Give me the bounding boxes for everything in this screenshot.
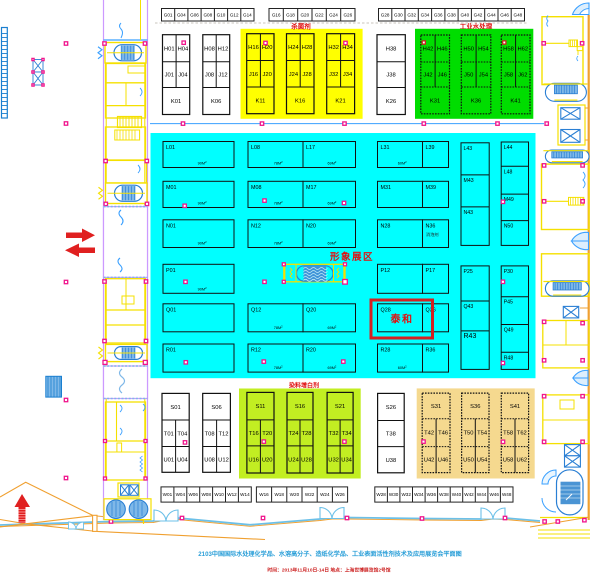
svg-text:H50: H50 <box>463 47 474 53</box>
svg-text:J04: J04 <box>178 73 188 79</box>
svg-text:T16: T16 <box>249 431 259 437</box>
svg-text:T34: T34 <box>342 431 353 437</box>
svg-text:W38: W38 <box>439 492 449 497</box>
svg-text:U12: U12 <box>218 458 229 464</box>
svg-text:染料增白剂: 染料增白剂 <box>288 382 319 390</box>
svg-text:U24: U24 <box>288 458 299 464</box>
svg-text:W22: W22 <box>305 492 315 497</box>
svg-text:时间：2013年11月10日-14日 地点：上海世博展: 时间：2013年11月10日-14日 地点：上海世博展览馆2号馆 <box>267 567 390 574</box>
svg-text:G16: G16 <box>272 12 281 17</box>
svg-text:J34: J34 <box>343 72 353 78</box>
svg-text:U34: U34 <box>341 458 352 464</box>
svg-text:U54: U54 <box>477 458 488 464</box>
svg-text:J16: J16 <box>249 72 258 78</box>
svg-text:U42: U42 <box>424 458 435 464</box>
svg-text:W18: W18 <box>274 492 284 497</box>
svg-text:N50: N50 <box>504 224 514 230</box>
svg-text:K26: K26 <box>386 99 396 105</box>
svg-text:N20: N20 <box>306 223 316 229</box>
svg-text:H12: H12 <box>218 46 229 52</box>
svg-text:R48: R48 <box>504 355 514 361</box>
svg-text:T58: T58 <box>503 431 513 437</box>
svg-text:泰和: 泰和 <box>390 313 414 326</box>
svg-text:G30: G30 <box>394 12 403 17</box>
svg-text:U16: U16 <box>248 458 259 464</box>
svg-text:杀菌剂: 杀菌剂 <box>291 22 311 31</box>
svg-text:M31: M31 <box>381 185 392 191</box>
svg-text:W46: W46 <box>489 492 499 497</box>
svg-text:T38: T38 <box>386 432 396 438</box>
svg-text:J62: J62 <box>518 73 527 79</box>
svg-text:W04: W04 <box>176 492 186 497</box>
svg-text:S36: S36 <box>470 404 480 410</box>
svg-text:T20: T20 <box>262 431 272 437</box>
svg-text:R43: R43 <box>464 333 477 340</box>
svg-text:G46: G46 <box>500 12 509 17</box>
svg-text:Q43: Q43 <box>464 304 474 310</box>
svg-text:K16: K16 <box>295 98 305 104</box>
svg-text:P30: P30 <box>504 269 513 275</box>
svg-text:H01: H01 <box>164 46 175 52</box>
svg-text:J42: J42 <box>423 73 432 79</box>
svg-text:U32: U32 <box>328 458 339 464</box>
svg-text:G44: G44 <box>487 12 496 17</box>
svg-text:U04: U04 <box>177 458 188 464</box>
svg-text:W14: W14 <box>240 492 250 497</box>
svg-text:Q49: Q49 <box>504 328 514 334</box>
svg-text:T24: T24 <box>289 431 300 437</box>
svg-text:U20: U20 <box>262 458 273 464</box>
svg-text:S01: S01 <box>170 405 180 411</box>
svg-text:M17: M17 <box>306 185 317 191</box>
svg-text:Q12: Q12 <box>251 307 261 313</box>
svg-text:J01: J01 <box>165 73 174 79</box>
svg-text:U28: U28 <box>301 458 312 464</box>
svg-text:J50: J50 <box>464 73 473 79</box>
svg-text:W10: W10 <box>214 492 224 497</box>
svg-text:G48: G48 <box>514 12 523 17</box>
svg-text:L17: L17 <box>306 145 315 151</box>
svg-text:W16: W16 <box>259 492 269 497</box>
svg-text:U01: U01 <box>163 458 174 464</box>
svg-text:S21: S21 <box>335 404 345 410</box>
svg-text:H58: H58 <box>503 47 514 53</box>
svg-text:R20: R20 <box>306 348 316 354</box>
svg-text:J12: J12 <box>218 73 227 79</box>
svg-text:H28: H28 <box>302 45 313 51</box>
svg-text:P01: P01 <box>166 268 176 274</box>
svg-text:G26: G26 <box>343 12 352 17</box>
svg-text:Q01: Q01 <box>166 307 176 313</box>
svg-text:L01: L01 <box>166 145 175 151</box>
svg-text:J08: J08 <box>205 73 214 79</box>
svg-text:L44: L44 <box>504 145 513 151</box>
svg-text:H08: H08 <box>204 46 215 52</box>
svg-text:L31: L31 <box>381 145 390 151</box>
svg-text:P12: P12 <box>381 268 391 274</box>
svg-text:H16: H16 <box>248 45 259 51</box>
svg-text:M39: M39 <box>426 185 437 191</box>
svg-text:L08: L08 <box>251 145 260 151</box>
svg-text:G32: G32 <box>407 12 416 17</box>
svg-text:N28: N28 <box>381 223 391 229</box>
svg-text:J20: J20 <box>263 72 272 78</box>
svg-text:W26: W26 <box>335 492 345 497</box>
svg-text:W32: W32 <box>401 492 411 497</box>
svg-text:T46: T46 <box>438 431 448 437</box>
svg-text:S41: S41 <box>510 404 520 410</box>
svg-text:2103中国国际水处理化学品、水溶高分子、造纸化学品、工业表: 2103中国国际水处理化学品、水溶高分子、造纸化学品、工业表面活性剂技术及应用展… <box>198 550 461 558</box>
svg-text:W40: W40 <box>452 492 462 497</box>
svg-text:W01: W01 <box>163 492 173 497</box>
svg-text:W06: W06 <box>188 492 198 497</box>
svg-text:H54: H54 <box>478 47 489 53</box>
svg-text:G28: G28 <box>381 12 390 17</box>
svg-text:J46: J46 <box>438 73 447 79</box>
svg-text:N01: N01 <box>166 223 176 229</box>
svg-text:U46: U46 <box>438 458 449 464</box>
svg-text:L43: L43 <box>464 146 473 152</box>
svg-text:G42: G42 <box>474 12 483 17</box>
svg-text:U62: U62 <box>516 458 527 464</box>
svg-text:G06: G06 <box>190 12 199 17</box>
svg-text:S31: S31 <box>431 404 441 410</box>
svg-text:K31: K31 <box>430 99 440 105</box>
svg-text:H24: H24 <box>288 45 299 51</box>
svg-text:M43: M43 <box>464 178 474 184</box>
svg-text:K11: K11 <box>255 98 265 104</box>
svg-text:H04: H04 <box>178 46 189 52</box>
svg-text:W34: W34 <box>414 492 424 497</box>
svg-text:W48: W48 <box>502 492 512 497</box>
svg-text:G08: G08 <box>203 12 212 17</box>
svg-text:S26: S26 <box>386 405 396 411</box>
svg-text:G14: G14 <box>243 12 252 17</box>
svg-text:T04: T04 <box>177 431 188 437</box>
svg-text:W24: W24 <box>320 492 330 497</box>
svg-text:G12: G12 <box>230 12 239 17</box>
svg-text:H62: H62 <box>517 47 528 53</box>
svg-text:T12: T12 <box>219 431 229 437</box>
svg-text:T50: T50 <box>464 431 474 437</box>
svg-text:N36: N36 <box>426 223 436 229</box>
svg-text:K21: K21 <box>335 98 345 104</box>
svg-text:G36: G36 <box>434 12 443 17</box>
svg-text:W28: W28 <box>376 492 386 497</box>
svg-text:L39: L39 <box>426 145 435 151</box>
svg-text:N12: N12 <box>251 223 261 229</box>
svg-text:R28: R28 <box>381 348 391 354</box>
svg-text:形象展区: 形象展区 <box>330 251 374 263</box>
svg-text:H34: H34 <box>342 45 353 51</box>
svg-text:N43: N43 <box>464 210 474 216</box>
svg-text:K01: K01 <box>171 99 181 105</box>
svg-text:P17: P17 <box>426 268 436 274</box>
svg-text:G40: G40 <box>460 12 469 17</box>
svg-text:W08: W08 <box>201 492 211 497</box>
svg-text:U08: U08 <box>204 458 215 464</box>
svg-text:T62: T62 <box>517 431 527 437</box>
svg-text:H32: H32 <box>328 45 339 51</box>
svg-text:J54: J54 <box>479 73 489 79</box>
svg-text:G01: G01 <box>164 12 173 17</box>
svg-text:W20: W20 <box>290 492 300 497</box>
svg-text:G38: G38 <box>447 12 456 17</box>
svg-text:W36: W36 <box>427 492 437 497</box>
svg-text:U58: U58 <box>503 458 514 464</box>
svg-text:J38: J38 <box>386 73 395 79</box>
svg-text:T28: T28 <box>302 431 312 437</box>
svg-text:W42: W42 <box>464 492 474 497</box>
svg-text:U38: U38 <box>386 458 397 464</box>
svg-text:Q28: Q28 <box>381 307 391 313</box>
svg-text:H20: H20 <box>262 45 273 51</box>
svg-text:J58: J58 <box>504 73 513 79</box>
svg-text:T01: T01 <box>164 431 174 437</box>
svg-text:R12: R12 <box>251 348 261 354</box>
svg-text:H42: H42 <box>423 47 434 53</box>
svg-text:J32: J32 <box>329 72 338 78</box>
svg-text:G20: G20 <box>300 12 309 17</box>
svg-text:G18: G18 <box>286 12 295 17</box>
svg-text:H46: H46 <box>437 47 448 53</box>
svg-text:G10: G10 <box>217 12 226 17</box>
svg-text:T54: T54 <box>477 431 488 437</box>
svg-text:T08: T08 <box>205 431 215 437</box>
svg-text:L48: L48 <box>504 169 513 175</box>
svg-text:G22: G22 <box>315 12 324 17</box>
svg-text:G04: G04 <box>177 12 186 17</box>
svg-text:P45: P45 <box>504 300 513 306</box>
svg-text:K41: K41 <box>510 99 520 105</box>
svg-text:G24: G24 <box>329 12 338 17</box>
svg-text:J24: J24 <box>289 72 299 78</box>
svg-text:K36: K36 <box>471 99 481 105</box>
svg-text:S06: S06 <box>211 405 221 411</box>
svg-text:T42: T42 <box>424 431 434 437</box>
svg-text:G34: G34 <box>421 12 430 17</box>
svg-text:M01: M01 <box>166 185 177 191</box>
svg-text:P25: P25 <box>464 269 473 275</box>
svg-text:W44: W44 <box>477 492 487 497</box>
svg-text:S11: S11 <box>255 404 265 410</box>
svg-text:W30: W30 <box>389 492 399 497</box>
svg-text:M08: M08 <box>251 185 262 191</box>
svg-text:Q36: Q36 <box>426 307 436 313</box>
svg-text:H38: H38 <box>386 46 397 52</box>
svg-text:U50: U50 <box>463 458 474 464</box>
svg-text:S16: S16 <box>295 404 305 410</box>
svg-text:Q20: Q20 <box>306 307 316 313</box>
svg-text:消泡剂: 消泡剂 <box>426 231 439 238</box>
svg-text:R36: R36 <box>426 348 436 354</box>
svg-text:K06: K06 <box>211 99 221 105</box>
svg-text:J28: J28 <box>302 72 311 78</box>
svg-text:R01: R01 <box>166 348 176 354</box>
svg-text:T32: T32 <box>329 431 339 437</box>
svg-text:W12: W12 <box>227 492 237 497</box>
